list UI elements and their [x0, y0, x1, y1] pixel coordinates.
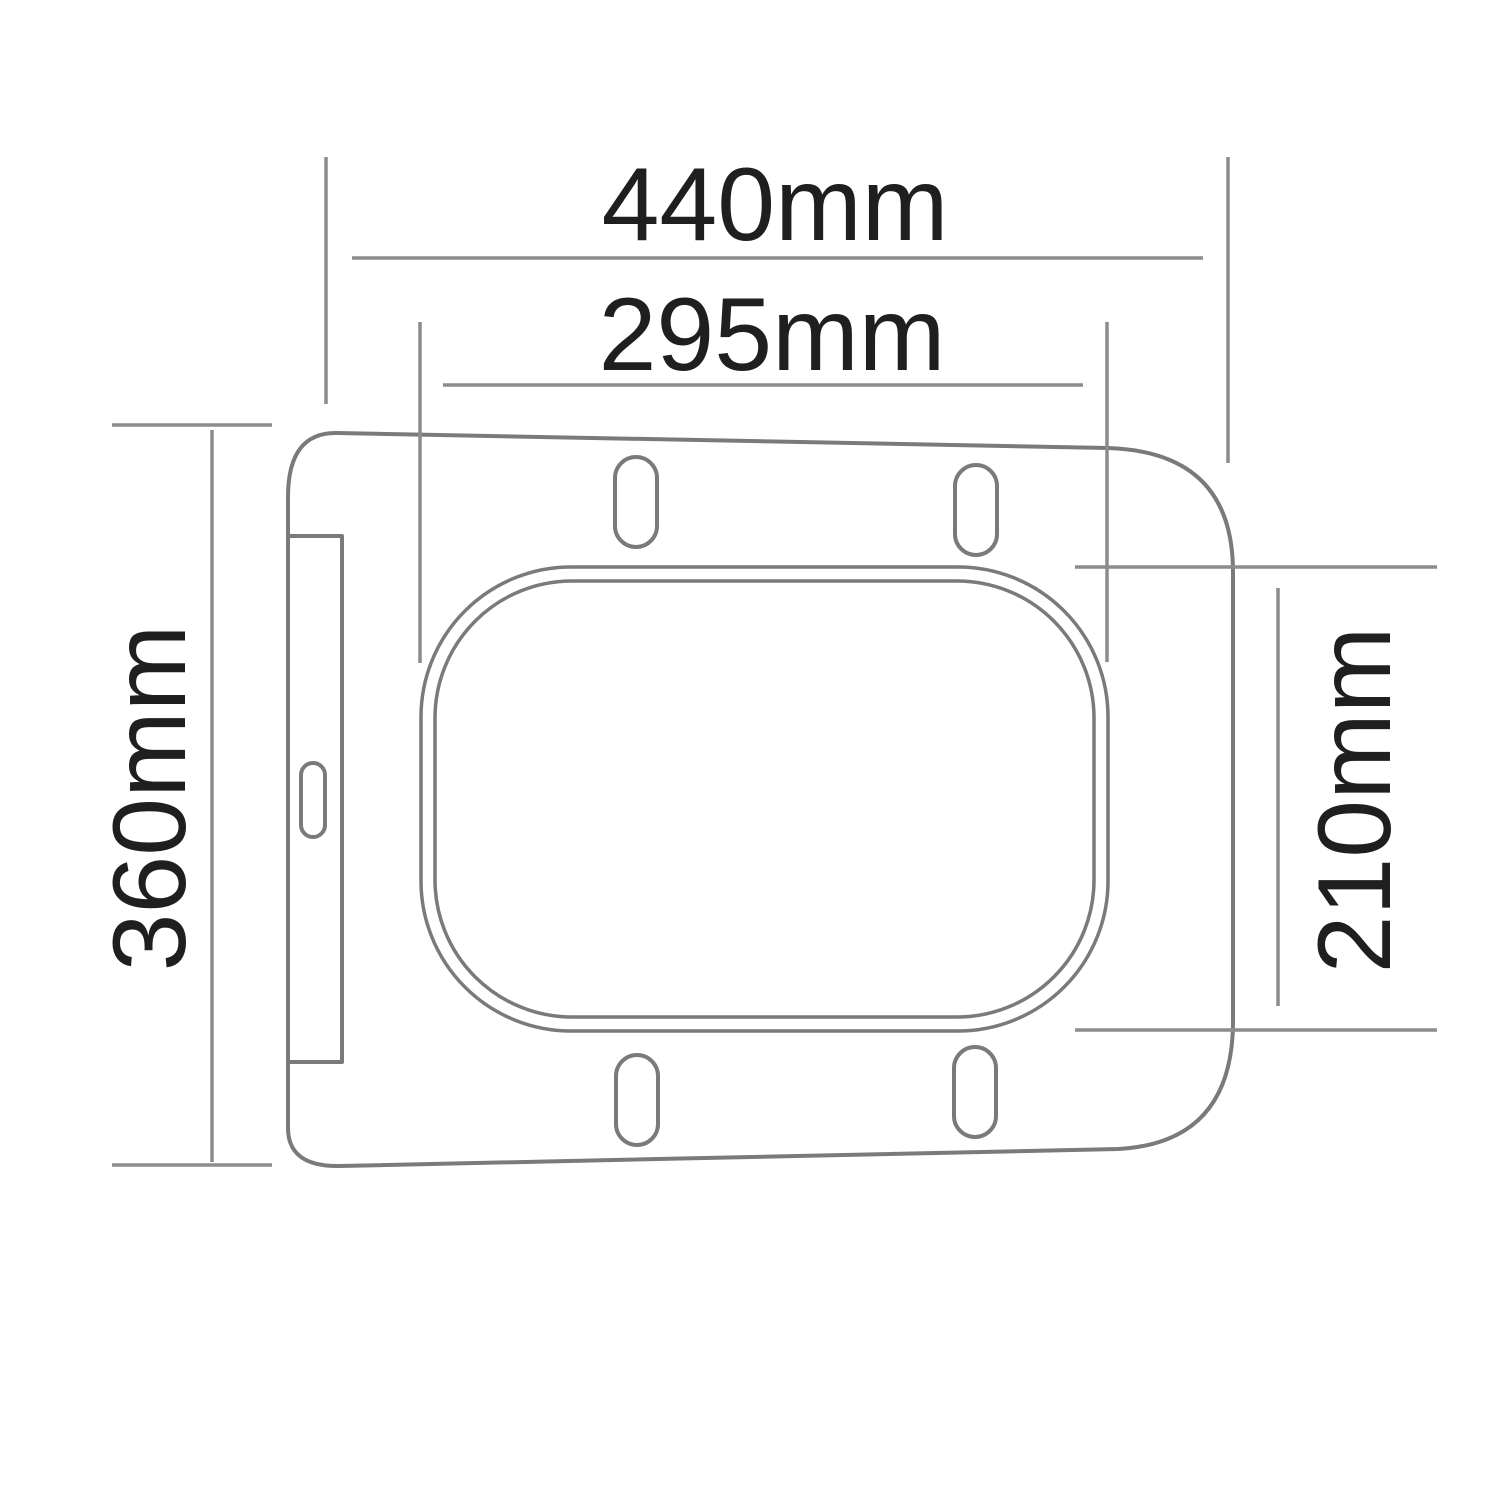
dimension-label-295: 295mm	[599, 277, 946, 393]
hinge-slot	[301, 763, 325, 837]
seat-opening-inner-ring	[435, 581, 1094, 1017]
dimension-overall-height: 360mm	[92, 425, 272, 1165]
dimension-label-440: 440mm	[602, 147, 949, 263]
seat-opening	[421, 567, 1108, 1031]
mounting-slot-top-right	[955, 465, 997, 555]
mounting-slot-top-left	[615, 457, 657, 547]
seat-outline	[288, 433, 1233, 1166]
hinge-plate	[289, 536, 342, 1062]
dimension-label-360: 360mm	[92, 625, 208, 972]
dimension-inner-height: 210mm	[1075, 567, 1437, 1030]
dimension-inner-width: 295mm	[420, 277, 1107, 663]
mounting-slot-bottom-right	[954, 1047, 996, 1137]
dimension-label-210: 210mm	[1297, 627, 1413, 974]
drawing-canvas: 440mm 295mm 360mm 210mm	[0, 0, 1500, 1500]
mounting-slot-bottom-left	[616, 1055, 658, 1145]
seat-opening-outer-ring	[421, 567, 1108, 1031]
mounting-slots	[615, 457, 997, 1145]
seat-body	[288, 433, 1233, 1166]
technical-drawing: 440mm 295mm 360mm 210mm	[0, 0, 1500, 1500]
